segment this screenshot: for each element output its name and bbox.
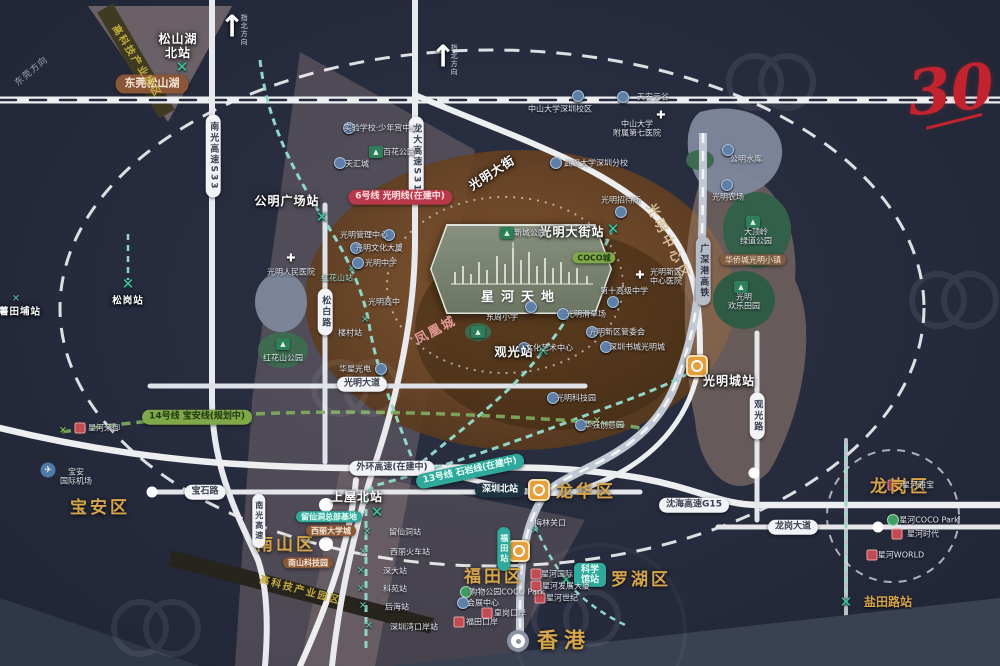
- poi-galaxy-yabao: 星河雅宝: [902, 480, 934, 489]
- park-icon: [276, 338, 290, 350]
- poi-sysu-shenzhen: 中山大学深圳校区: [528, 104, 592, 113]
- line14-label: 14号线 宝安线(规划中): [142, 410, 252, 425]
- poi-futian-port: 福田口岸: [466, 617, 498, 626]
- poi-sysu-7th-hospital: 中山大学 附属第七医院: [613, 120, 661, 139]
- poi-culture-art-center: 文化艺术中心: [525, 343, 573, 352]
- poi-guangming-center-hospital: 光明新区 中心医院: [650, 268, 682, 287]
- poi-huanggang-port: 皇岗口岸: [494, 608, 526, 617]
- station-shenzhenwan-port: 深圳湾口岸站: [390, 622, 438, 631]
- building-icon: [352, 257, 364, 269]
- poi-book-city: 深圳书城光明城: [609, 342, 665, 351]
- road-nanguang-expwy: 南光高速: [252, 494, 265, 548]
- project-name: 星河天地: [481, 286, 561, 305]
- north-caption-left: 指北方向: [240, 14, 248, 46]
- road-guanguang: 观光路: [750, 393, 765, 440]
- station-songshanhu-north: 松山湖 北站: [158, 32, 197, 60]
- metro-x-sm-icon: [357, 584, 365, 595]
- park-icon: [471, 326, 485, 338]
- metro-x-sm-icon: [359, 601, 367, 612]
- building-icon: [550, 157, 562, 169]
- station-guangmingcheng: 光明城站: [703, 374, 755, 388]
- road-nanguang-expwy-s33: 南光高速S33: [206, 114, 221, 197]
- building-icon: [607, 296, 619, 308]
- park-icon: [734, 281, 748, 293]
- poi-huaqiang-creative-park: 华强创意园: [584, 420, 624, 429]
- station-gongming-square: 公明广场站: [254, 194, 319, 208]
- poi-convention-center: 会展中心: [467, 598, 499, 607]
- anniversary-number: 30: [905, 58, 997, 123]
- station-futian: 福田站: [497, 527, 510, 571]
- area-nanshan-tech-park: 南山科技园: [283, 557, 333, 568]
- rail-guangshengang: 广深港高铁: [696, 237, 711, 306]
- road-shenhai-g15: 沈海高速G15: [659, 498, 729, 513]
- metro-x-green-icon: [59, 426, 67, 437]
- project-icon: [892, 529, 903, 540]
- park-icon: [746, 216, 760, 228]
- metro-x-icon: [371, 503, 384, 521]
- poi-xincheng-park: 新城公园: [514, 228, 546, 237]
- poi-baoan-airport: 宝安 国际机场: [60, 468, 92, 487]
- building-icon: [572, 90, 584, 102]
- poi-no10-highschool: 第十高级中学: [600, 286, 648, 295]
- area-liuxiandong-hq: 留仙洞总部基地: [296, 511, 362, 522]
- hospital-icon: [286, 252, 295, 265]
- metro-x-icon: [316, 208, 329, 226]
- anniversary-logo: 30: [905, 58, 997, 127]
- station-yantianlu: 盐田路站: [864, 595, 912, 609]
- building-icon: [721, 179, 733, 191]
- poi-coco-park-futian: 购物公园COCO Park: [469, 587, 545, 596]
- mall-icon: [887, 514, 899, 526]
- station-honghuashan: 红花山站: [321, 273, 353, 282]
- station-shangwu-north: 上屋北站: [331, 490, 383, 504]
- poi-dongzhou-primary: 东周小学: [486, 312, 518, 321]
- poi-galaxy-world: 星河WORLD: [878, 550, 924, 559]
- poi-guangming-culture-tower: 光明文化大厦: [355, 243, 403, 252]
- metro-x-icon: [840, 593, 853, 611]
- metro-x-sm-icon: [359, 547, 367, 558]
- district-luohu: 罗湖区: [611, 570, 671, 590]
- poi-galaxy-tower: 星河发展大厦: [542, 581, 590, 590]
- poi-wuhan-univ-shenzhen: 武汉大学深圳分校: [564, 158, 628, 167]
- poi-galaxy-century: 星河世纪: [546, 593, 578, 602]
- building-icon: [525, 301, 537, 313]
- park-icon: [369, 146, 383, 158]
- metro-x-sm-icon: [363, 527, 371, 538]
- building-icon: [615, 206, 627, 218]
- district-futian: 福田区: [464, 567, 524, 587]
- station-shenda: 深大站: [383, 566, 407, 575]
- station-meilin-checkpoint: 梅林关口: [534, 518, 566, 527]
- station-songgang: 松岗站: [112, 295, 144, 306]
- road-longgang-avenue: 龙岗大道: [768, 520, 818, 535]
- building-icon: [617, 91, 629, 103]
- hospital-icon: [635, 269, 644, 282]
- poi-happy-farmland: 光明 欢乐田园: [728, 293, 760, 312]
- station-xili-railway: 西丽火车站: [390, 547, 430, 556]
- poi-galaxy-international: 星河国际: [541, 569, 573, 578]
- station-keyuan: 科苑站: [383, 584, 407, 593]
- poi-dadingling-greenway: 大顶岭 绿道公园: [740, 228, 772, 247]
- station-shutianpu: 薯田埔站: [0, 306, 41, 317]
- terminal-icon: [511, 634, 525, 648]
- poi-gongming-reservoir: 公明水库: [730, 154, 762, 163]
- airport-icon: [41, 463, 56, 478]
- project-icon: [531, 569, 542, 580]
- project-icon: [75, 423, 86, 434]
- metro-x-icon: [176, 58, 189, 76]
- poi-guangming-mgmt-center: 光明管理中心: [340, 230, 388, 239]
- district-hongkong: 香港: [537, 629, 591, 654]
- poi-guangming-hotel: 光明招待所: [601, 195, 641, 204]
- north-caption-center: 指北方向: [450, 44, 458, 76]
- poi-galaxy-rongyu: 星河荣御: [88, 423, 120, 432]
- poi-csot: 华星光电: [339, 364, 371, 373]
- poi-honghuashan-park: 红花山公园: [263, 353, 303, 362]
- area-coco-city: COCO城: [572, 252, 615, 263]
- metro-x-sm-icon: [361, 315, 369, 326]
- project-icon: [454, 617, 465, 628]
- line6-label: 6号线 光明线(在建中): [348, 190, 452, 205]
- poi-guangming-admin: 光明新区管委会: [589, 327, 645, 336]
- metro-x-sm-icon: [12, 294, 20, 305]
- poi-tianhui-city: 天汇城: [345, 159, 369, 168]
- station-guangming-street: 光明大街站: [539, 225, 604, 239]
- poi-guangming-highschool: 光明高中: [368, 297, 400, 306]
- station-shenzhen-north: 深圳北站: [475, 483, 525, 498]
- project-icon: [867, 550, 878, 561]
- station-liuxiandong: 留仙洞站: [389, 527, 421, 536]
- station-loucun: 楼村站: [338, 328, 362, 337]
- railway-icon: [528, 479, 550, 501]
- metro-x-icon: [607, 220, 620, 238]
- poi-experimental-school: 实验学校·少年宫中心: [344, 123, 419, 132]
- road-songbai: 松白路: [318, 289, 333, 336]
- district-longhua: 龙华区: [556, 482, 616, 502]
- poi-guangming-tech-park: 光明科技园: [556, 393, 596, 402]
- district-baoan: 宝安区: [70, 498, 130, 518]
- road-baoshi: 宝石路: [184, 485, 225, 500]
- metro-x-sm-icon: [357, 566, 365, 577]
- poi-grass-ski-field: 光明滑草场: [566, 309, 606, 318]
- metro-x-sm-icon: [365, 621, 373, 632]
- railway-icon: [508, 540, 530, 562]
- poi-tianan-cloud-valley: 天安云谷: [637, 92, 669, 101]
- park-icon: [500, 227, 514, 239]
- poi-baihua-park: 百花公园: [383, 147, 415, 156]
- poi-guangming-middle-school: 光明中学: [365, 258, 397, 267]
- area-xili-university-town: 西丽大学城: [306, 525, 356, 536]
- poi-galaxy-coco-park: 星河COCO Park: [899, 515, 959, 524]
- poi-guangming-farm: 光明农场: [712, 192, 744, 201]
- location-map: 星河天地 30 宝安区南山区龙华区福田区罗湖区龙岗区香港松山湖 北站公明广场站光…: [0, 0, 1000, 666]
- station-houhai: 后海站: [385, 602, 409, 611]
- poi-galaxy-times: 星河时代: [907, 529, 939, 538]
- area-oct-guangming-town: 华侨城光明小镇: [720, 254, 786, 265]
- metro-x-icon: [122, 275, 135, 293]
- building-icon: [375, 363, 387, 375]
- poi-guangming-people-hospital: 光明人民医院: [267, 267, 315, 276]
- road-guangming-avenue: 光明大道: [337, 377, 387, 392]
